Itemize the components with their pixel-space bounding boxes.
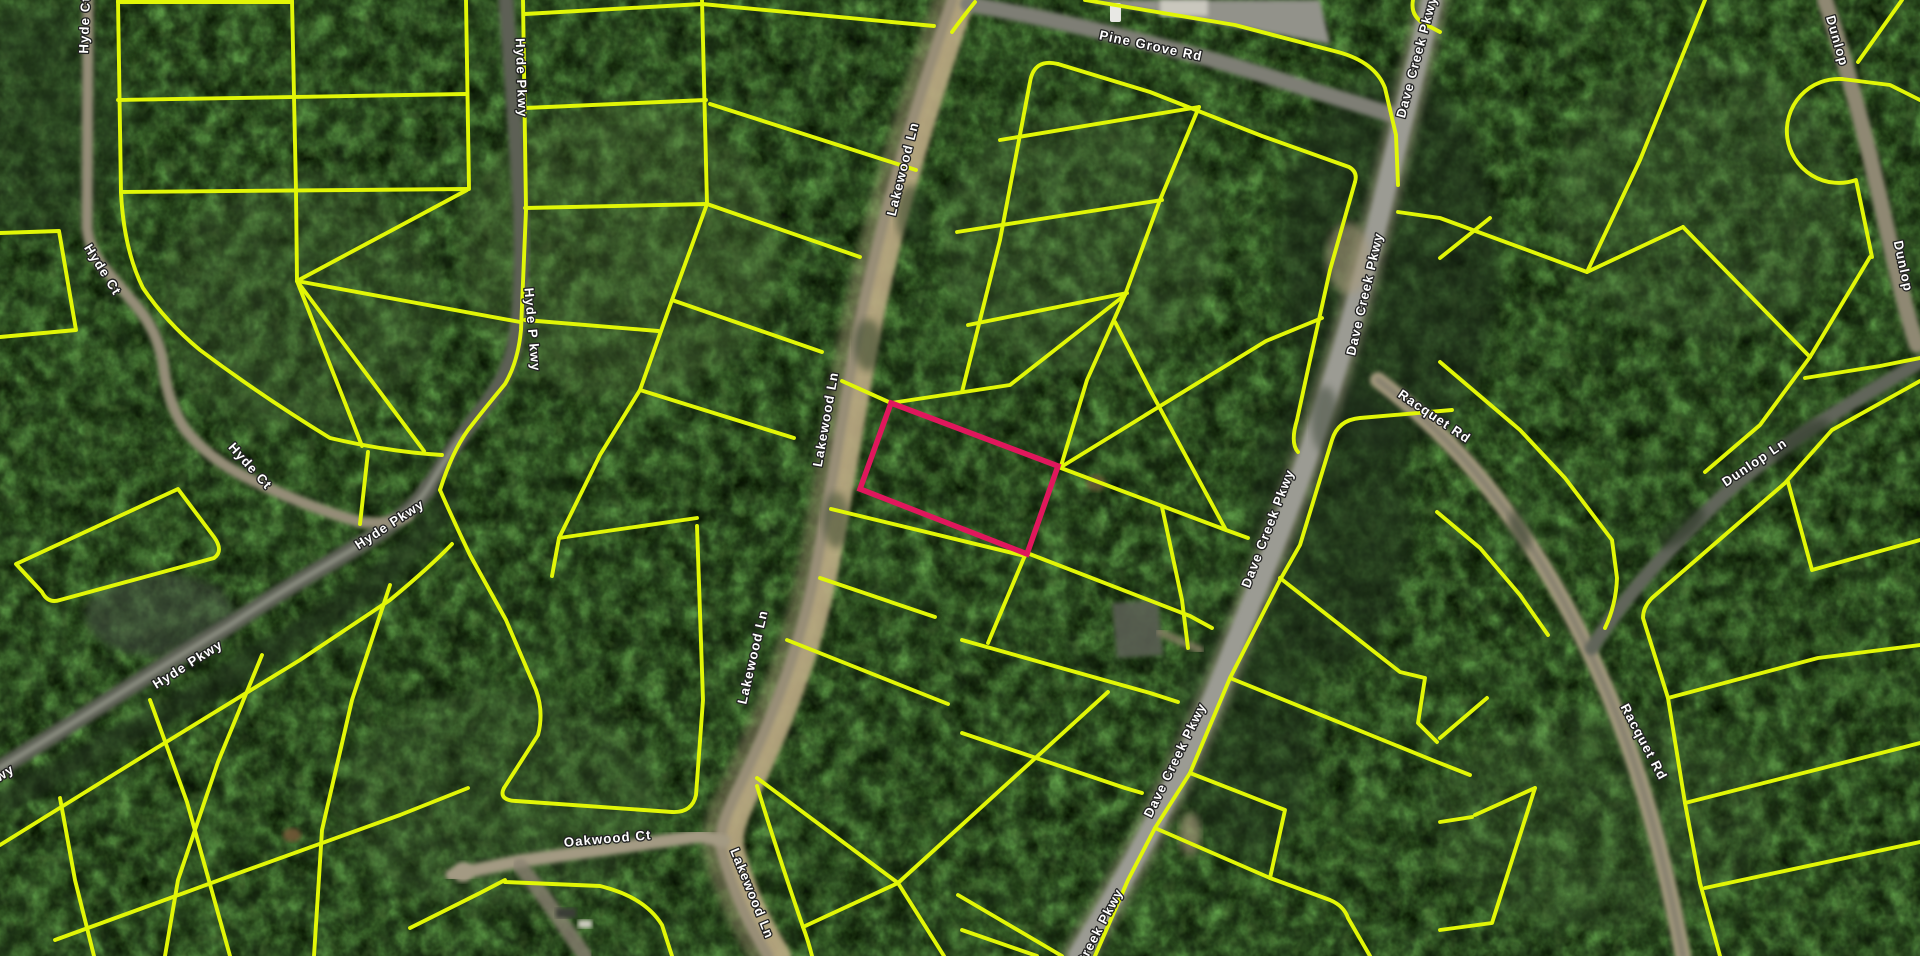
svg-text:Hyde Ct: Hyde Ct xyxy=(76,0,93,54)
svg-text:Hyde Pkwy: Hyde Pkwy xyxy=(513,38,531,118)
